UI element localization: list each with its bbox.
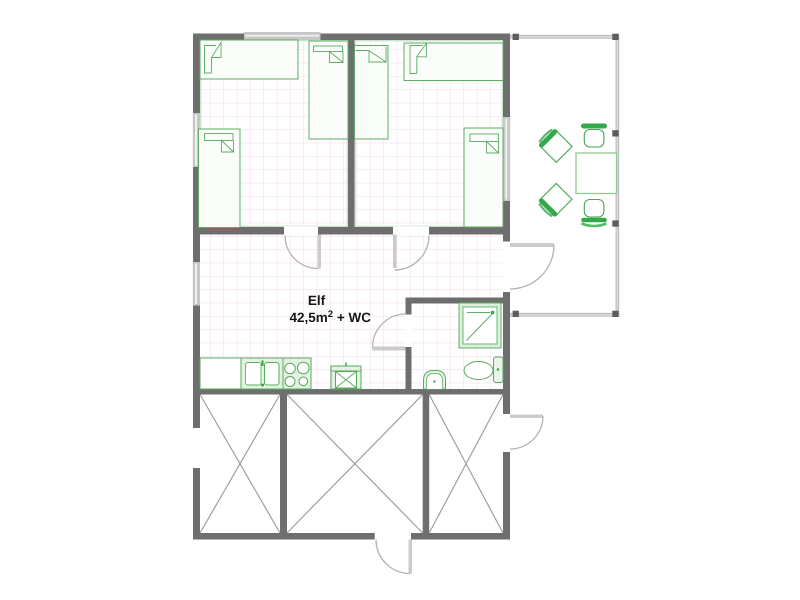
svg-text:Elf: Elf xyxy=(308,293,326,308)
